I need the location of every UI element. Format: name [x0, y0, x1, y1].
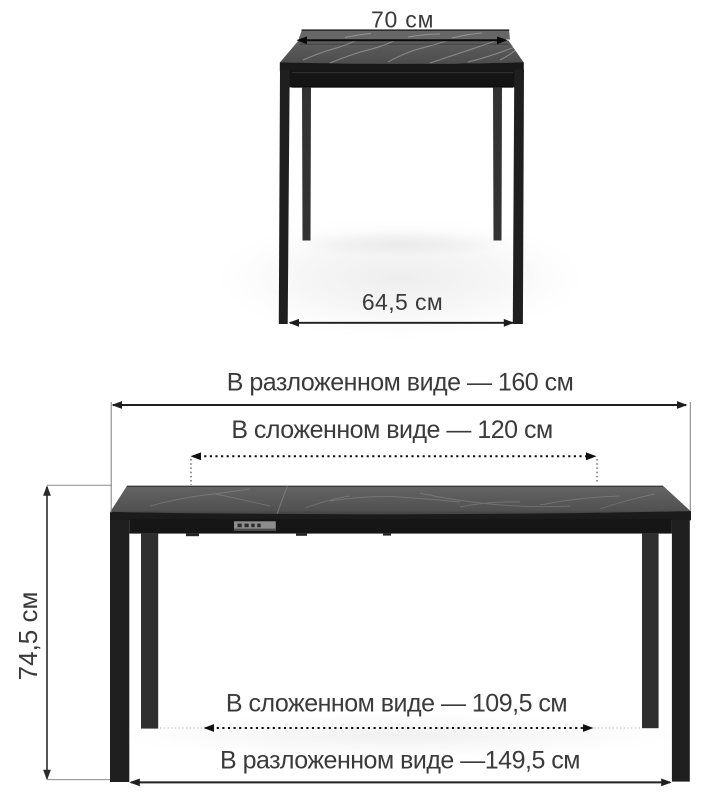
svg-text:В разложенном виде —149,5 см: В разложенном виде —149,5 см	[220, 747, 580, 775]
svg-text:70 см: 70 см	[371, 7, 434, 33]
svg-text:74,5 см: 74,5 см	[13, 592, 43, 681]
svg-text:64,5 см: 64,5 см	[362, 289, 443, 315]
svg-text:В сложенном виде — 120 см: В сложенном виде — 120 см	[231, 416, 552, 444]
svg-text:В сложенном виде — 109,5 см: В сложенном виде — 109,5 см	[226, 690, 567, 718]
svg-text:В разложенном виде — 160 см: В разложенном виде — 160 см	[227, 369, 574, 397]
